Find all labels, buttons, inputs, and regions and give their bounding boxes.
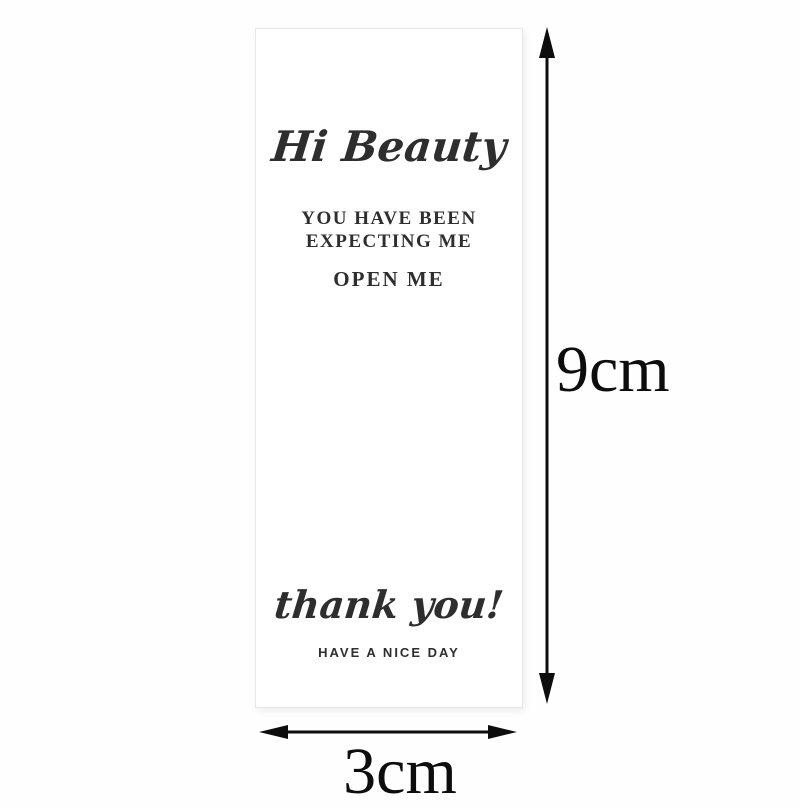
height-arrow-icon	[539, 27, 555, 704]
message-line-2: EXPECTING ME	[256, 230, 522, 253]
product-dimension-image: Hi Beauty YOU HAVE BEEN EXPECTING ME OPE…	[0, 0, 800, 800]
height-dimension-label: 9cm	[556, 334, 670, 406]
sticker-card: Hi Beauty YOU HAVE BEEN EXPECTING ME OPE…	[255, 28, 523, 708]
message-text: YOU HAVE BEEN EXPECTING ME	[256, 207, 522, 253]
open-me-text: OPEN ME	[256, 265, 522, 293]
width-dimension-label: 3cm	[320, 736, 480, 808]
message-line-1: YOU HAVE BEEN	[256, 207, 522, 230]
thank-you-text: thank you!	[253, 575, 525, 635]
greeting-text: Hi Beauty	[253, 117, 525, 177]
have-a-nice-day-text: HAVE A NICE DAY	[256, 641, 522, 665]
